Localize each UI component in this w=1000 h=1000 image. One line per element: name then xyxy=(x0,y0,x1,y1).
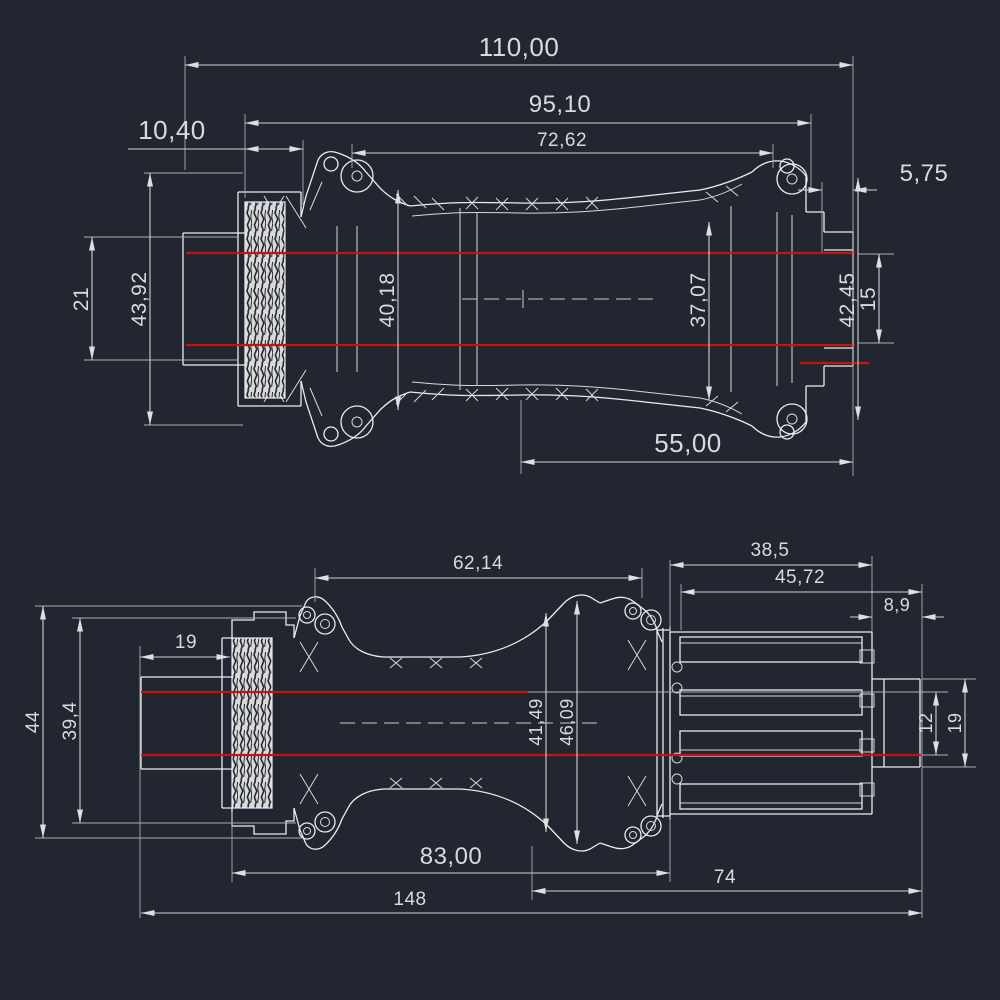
dim-label-right-cap-dia: 42,45 xyxy=(836,272,859,327)
dim-label-left-end: 10,40 xyxy=(138,115,206,145)
cad-canvas: 110,00 95,10 72,62 10,40 5,75 55,00 21 4… xyxy=(0,0,1000,1000)
dim-label-left-cap-len: 19 xyxy=(175,632,197,653)
hub-centerlines xyxy=(340,290,656,723)
dim-label-left-cap-dia: 43,92 xyxy=(128,271,151,326)
dim-label-left-axle-dia: 21 xyxy=(70,287,93,311)
dim-label-left-dia-inner: 39,4 xyxy=(60,702,81,741)
left-knurled-cap-rear xyxy=(232,638,272,808)
dim-label-left-shell-dia: 40,18 xyxy=(376,272,399,327)
dim-label-right-axle-dia: 15 xyxy=(857,287,880,311)
dim-label-right-cap-dia: 19 xyxy=(945,712,965,733)
dim-label-right-end: 5,75 xyxy=(900,160,949,187)
dim-label-freehub-b: 45,72 xyxy=(775,567,825,588)
dim-label-right-len: 74 xyxy=(714,867,736,888)
left-knurled-cap-front xyxy=(245,202,285,398)
dim-label-body-width: 95,10 xyxy=(529,91,592,118)
dim-label-center-to-right: 55,00 xyxy=(654,428,722,458)
dim-label-end-cap-len: 8,9 xyxy=(884,595,911,615)
dim-label-left-dia-outer: 44 xyxy=(23,711,44,733)
dimension-labels: 110,00 95,10 72,62 10,40 5,75 55,00 21 4… xyxy=(23,32,965,910)
dim-label-overall-width: 110,00 xyxy=(479,32,560,62)
hub-technical-drawing: 110,00 95,10 72,62 10,40 5,75 55,00 21 4… xyxy=(0,0,1000,1000)
dim-label-flange-spacing-front: 72,62 xyxy=(537,130,587,151)
dim-label-overall-len: 148 xyxy=(393,889,426,910)
dim-label-right-shell-dia: 37,07 xyxy=(687,272,710,327)
dim-label-body-len: 83,00 xyxy=(420,843,483,870)
extension-lines xyxy=(35,56,976,918)
dim-label-freehub-a: 38,5 xyxy=(751,540,790,561)
dimension-lines xyxy=(43,65,965,913)
dim-label-shell-dia-b: 46,09 xyxy=(557,698,577,746)
dim-label-axle-dia: 12 xyxy=(916,712,936,733)
dim-label-flange-spacing-rear: 62,14 xyxy=(453,553,503,574)
dim-label-shell-dia-a: 41,49 xyxy=(526,698,546,746)
